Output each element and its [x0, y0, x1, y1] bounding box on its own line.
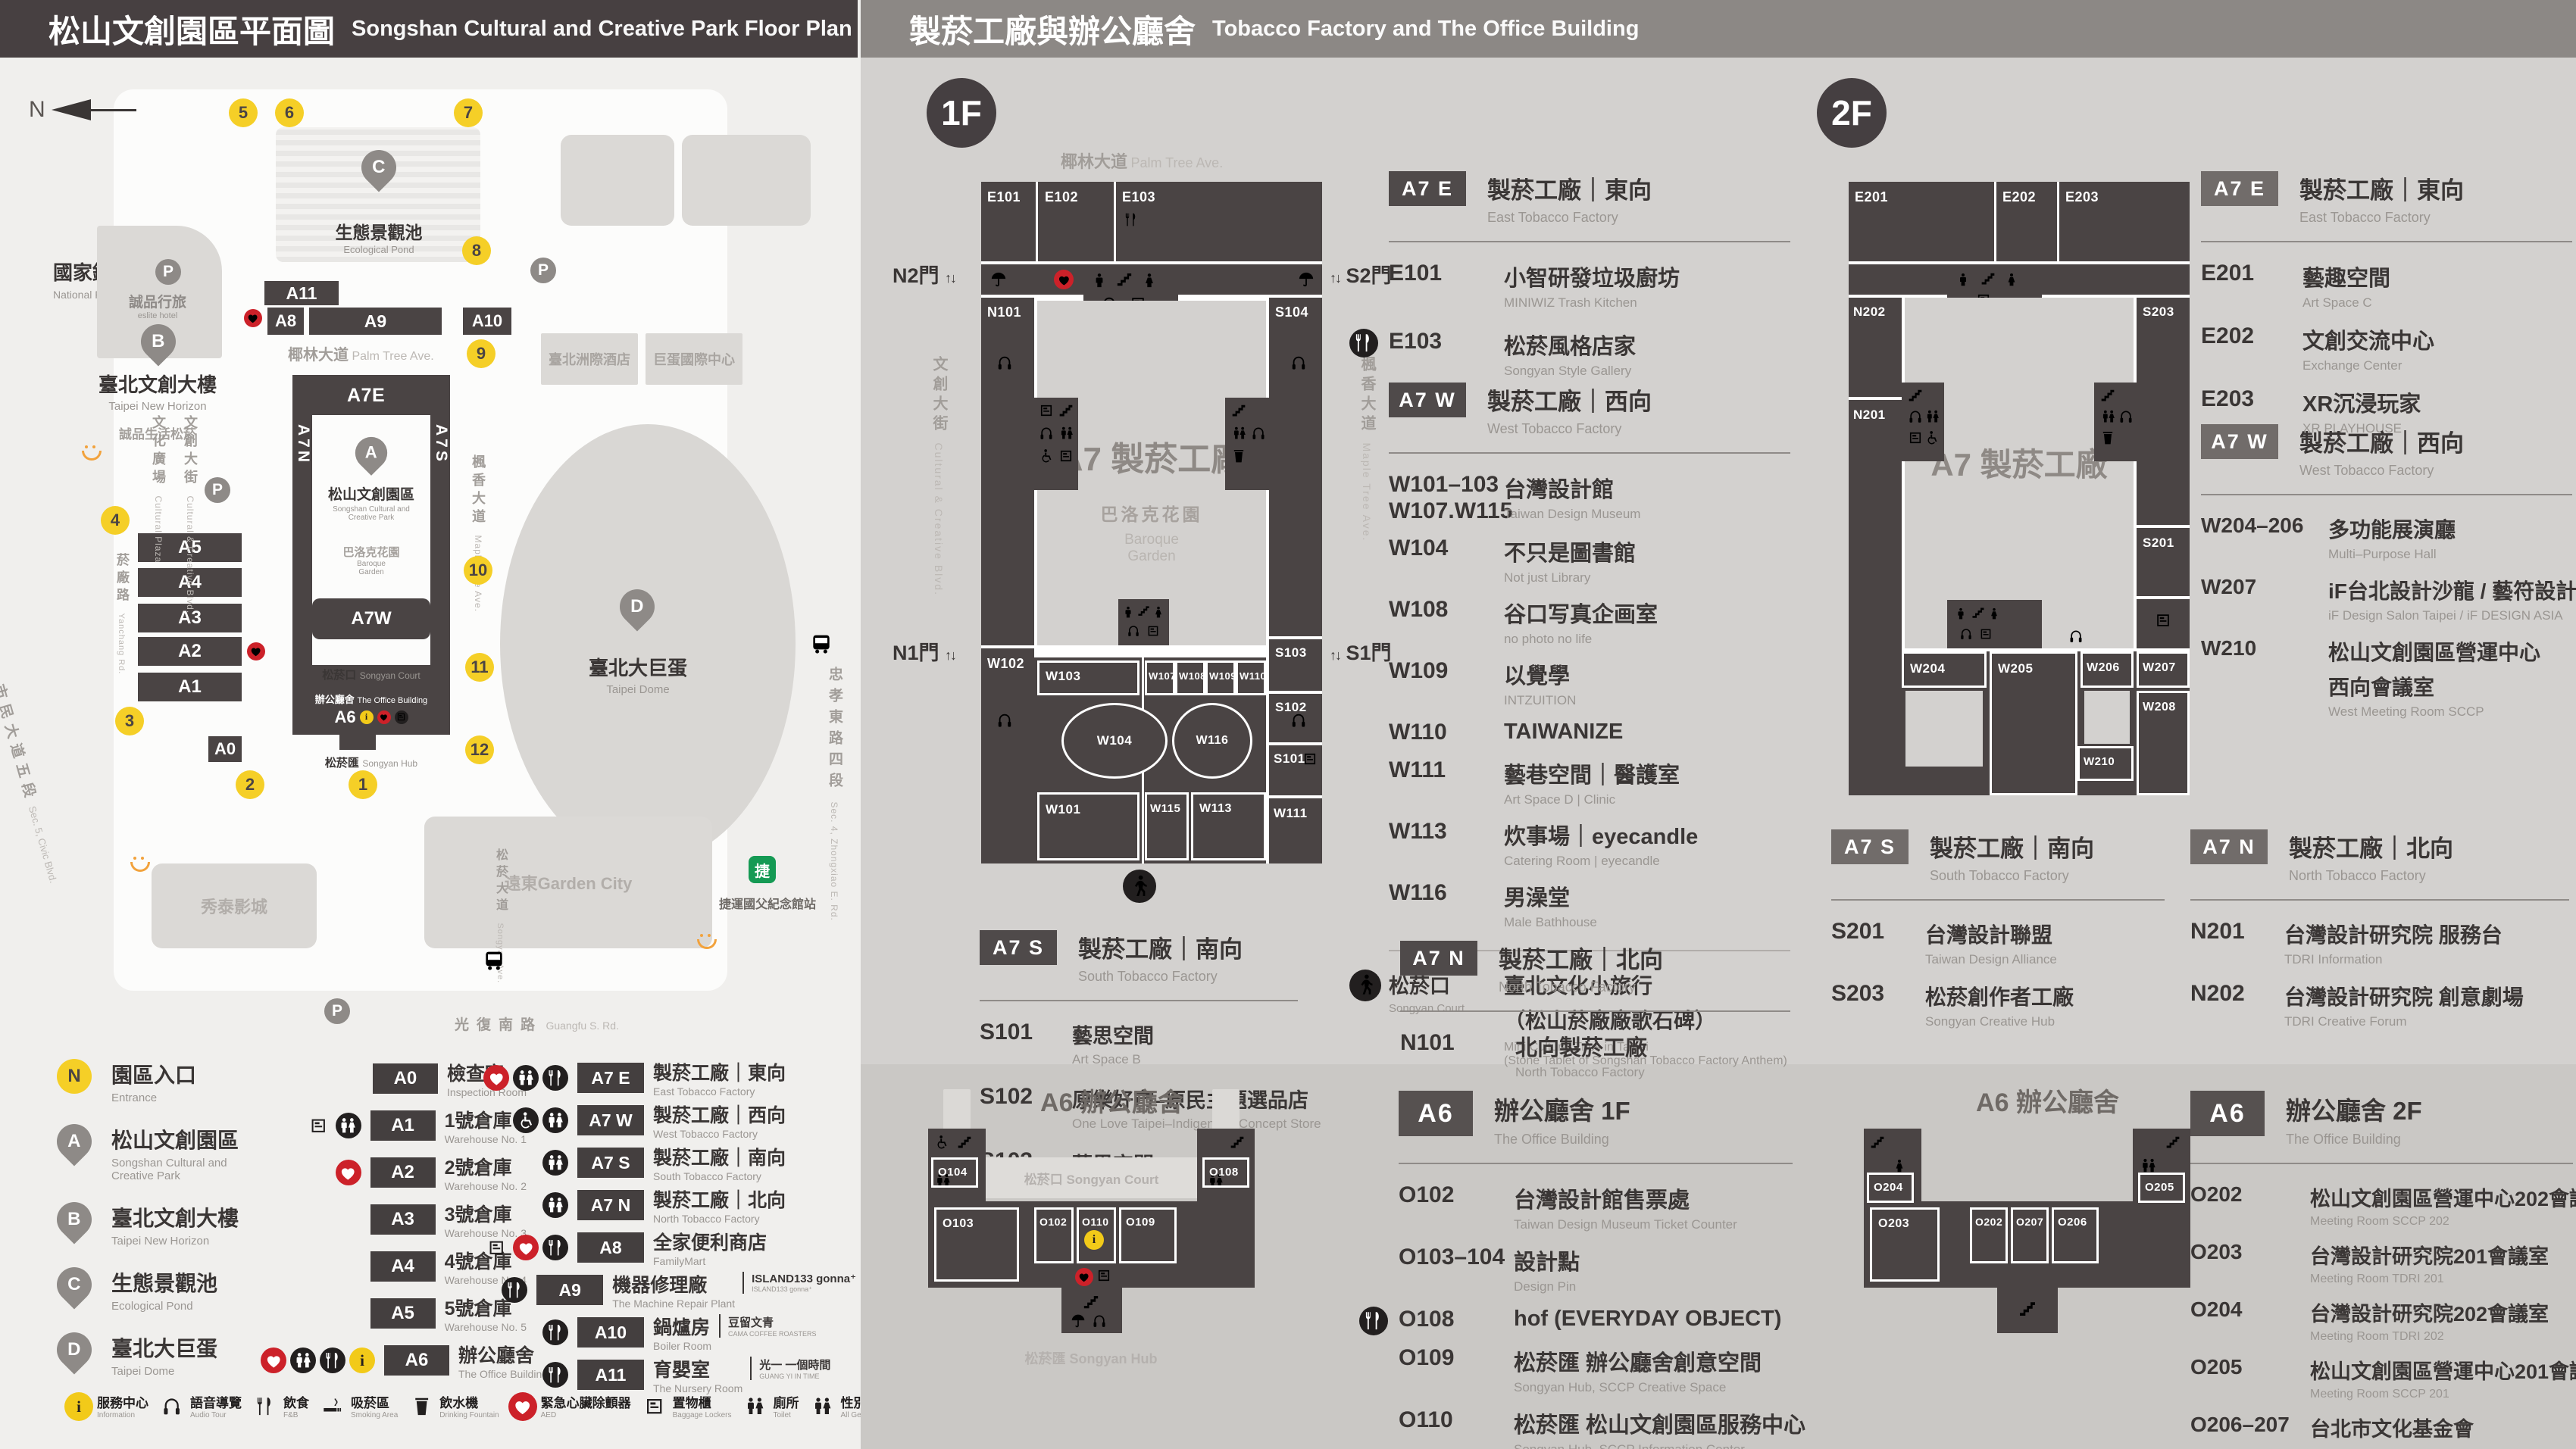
- building-a7e-label: A7E: [347, 385, 385, 407]
- legend-pins: N 園區入口 Entrance A 松山文創園區 Songshan Cultur…: [57, 1059, 284, 1397]
- room-w113: W113: [1199, 802, 1232, 816]
- room-o109: O109: [1126, 1216, 1155, 1229]
- room-e202: E202: [2002, 189, 2036, 205]
- aed-icon: [244, 309, 262, 327]
- room-list-row: O102 台灣設計館售票處Taiwan Design Museum Ticket…: [1399, 1182, 1793, 1232]
- road-yanchang: 菸廠路 Yanchang Rd.: [112, 553, 131, 674]
- legend-badge: A0: [373, 1063, 438, 1094]
- legend-row: A10 鍋爐房 Boiler Room 豆留文青 CAMA COFFEE ROA…: [470, 1313, 856, 1351]
- legend-badge: A9: [536, 1275, 603, 1305]
- room-list-row: O110 松菸匯 松山文創園區服務中心Songyan Hub, SCCP Inf…: [1399, 1407, 1793, 1449]
- building-a9: A9: [309, 308, 442, 335]
- fnb-c-icon: [320, 1348, 345, 1373]
- legend-badge: A10: [577, 1317, 644, 1348]
- section-a6-1f: A6 辦公廳舍 1FThe Office Building O102 台灣設計館…: [1399, 1091, 1793, 1449]
- room-n201: N201: [1853, 408, 1886, 423]
- room-n101: N101: [987, 304, 1021, 320]
- room-o204: O204: [1874, 1181, 1903, 1194]
- legend-badge: A2: [370, 1157, 436, 1188]
- section-a7s-2f: A7 S 製菸工廠｜南向South Tobacco Factory S201 台…: [1831, 829, 2165, 1029]
- section-a7e-1f: A7 E 製菸工廠｜東向East Tobacco Factory E101 小智…: [1389, 171, 1790, 379]
- gate-n2: N2門 ↑↓: [893, 259, 955, 289]
- locker-icon: [1908, 430, 1923, 445]
- audio-guide-icon: [1092, 1313, 1107, 1329]
- legend-pin-row: A 松山文創園區 Songshan Cultural and Creative …: [57, 1124, 284, 1182]
- entrance-11: 11: [465, 653, 494, 682]
- room-list-row: O202 松山文創園區營運中心202會議室Meeting Room SCCP 2…: [2190, 1182, 2573, 1229]
- toilet-c-icon: [542, 1150, 568, 1176]
- facility-item: i 服務中心 Information: [64, 1392, 148, 1421]
- facility-item: 廁所 Toilet: [740, 1392, 799, 1421]
- legend-badge: A3: [370, 1204, 436, 1235]
- room-list-row: E202 文創交流中心Exchange Center: [2201, 323, 2572, 373]
- fountain-icon: [1231, 448, 1246, 464]
- womens-toilet-icon: [2005, 271, 2018, 288]
- building-a7n-label: A7N: [294, 424, 312, 465]
- legend-pin-row: C 生態景觀池 Ecological Pond: [57, 1267, 284, 1313]
- facility-item: 飲水機 Drinking Fountain: [407, 1392, 499, 1421]
- hotel-block: 臺北洲際酒店: [541, 333, 638, 385]
- north-arrow-icon: [52, 99, 91, 120]
- room-o110: O110: [1082, 1216, 1108, 1228]
- room-w104: W104: [1097, 733, 1132, 748]
- stairs-icon: [1908, 388, 1923, 403]
- room-list-row: E201 藝趣空間Art Space C: [2201, 261, 2572, 311]
- legend-row: A8 全家便利商店 FamilyMart: [470, 1229, 856, 1266]
- room-list-row: W207 iF台北設計沙龍 / 藝符設計iF Design Salon Taip…: [2201, 575, 2572, 623]
- toilet-icon: [740, 1392, 769, 1421]
- legend-pin-icon: A: [49, 1116, 98, 1166]
- locker-icon: [1302, 751, 1318, 767]
- room-w101: W101: [1046, 802, 1080, 817]
- room-list-row: O206–207 台北市文化基金會松山文創園區營運中心Taipei Cultur…: [2190, 1413, 2573, 1449]
- left-title-en: Songshan Cultural and Creative Park Floo…: [352, 17, 852, 42]
- building-a10: A10: [463, 308, 511, 335]
- fountain-icon: [2100, 430, 2115, 445]
- facility-item: 語音導覽 Audio Tour: [158, 1392, 242, 1421]
- room-o207: O207: [2016, 1216, 2043, 1228]
- parking-icon: P: [324, 998, 350, 1024]
- entrance-4: 4: [101, 506, 130, 535]
- toilet-c-icon: [336, 1113, 361, 1138]
- facility-item: 吸菸區 Smoking Area: [318, 1392, 398, 1421]
- room-list-row: O204 台灣設計研究院202會議室Meeting Room TDRI 202: [2190, 1298, 2573, 1344]
- right-header: 製菸工廠與辦公廳舍 Tobacco Factory and The Office…: [861, 0, 2576, 58]
- hotel-block: 巨蛋國際中心: [646, 333, 742, 385]
- legend-pin-row: D 臺北大巨蛋 Taipei Dome: [57, 1332, 284, 1378]
- dome-label: 臺北大巨蛋 Taipei Dome: [562, 653, 714, 696]
- room-list-row: E101 小智研發垃圾廚坊MINIWIZ Trash Kitchen: [1389, 261, 1790, 311]
- accessible-icon: [1924, 430, 1940, 445]
- legend-pin-icon: D: [49, 1325, 98, 1374]
- audio-guide-icon: [1290, 354, 1307, 371]
- room-list-row: W113 炊事場｜eyecandleCatering Room | eyecan…: [1389, 819, 1790, 869]
- room-e201: E201: [1855, 189, 1888, 205]
- aed-icon: [513, 1235, 539, 1260]
- tobacco-factory-plan-2f: E201 E202 E203 N202 N201 S203 S201 W204 …: [1849, 182, 2190, 795]
- legend-row: A9 機器修理廠 The Machine Repair Plant ISLAND…: [470, 1271, 856, 1309]
- room-s203: S203: [2143, 304, 2174, 320]
- building-a2: A2: [138, 637, 242, 666]
- room-list-row: W110 TAIWANIZE: [1389, 720, 1790, 746]
- legend-pin-icon: N: [57, 1059, 92, 1094]
- audio-guide-icon: [1127, 624, 1140, 638]
- room-list-row: W116 男澡堂Male Bathhouse: [1389, 880, 1790, 930]
- locker-icon: [306, 1113, 332, 1138]
- room-o202: O202: [1975, 1216, 2002, 1228]
- legend-row: A7 E 製菸工廠｜東向 East Tobacco Factory: [470, 1059, 856, 1097]
- a6-plan-2f: A6 辦公廳舍 O204 O205 O203 O202 O207 O206: [1856, 1082, 2193, 1385]
- room-o104: O104: [938, 1166, 968, 1179]
- info-icon: i: [1084, 1230, 1104, 1250]
- womens-toilet-icon: [1988, 606, 2000, 621]
- legend-badge: A5: [370, 1298, 436, 1329]
- road-zhongxiao: 忠孝東路四段 Sec. 4, Zhongxiao E. Rd.: [824, 667, 845, 921]
- toilet-icon: [1231, 426, 1248, 441]
- audio-icon: [158, 1392, 186, 1421]
- locker-icon: [2155, 612, 2171, 629]
- room-list-row: S203 松菸創作者工廠Songyan Creative Hub: [1831, 981, 2165, 1029]
- room-list-row: W108 谷口写真企画室no photo no life: [1389, 597, 1790, 647]
- north-arrow: N: [29, 97, 136, 123]
- room-w116: W116: [1196, 734, 1229, 748]
- entrance-7: 7: [454, 98, 483, 127]
- parking-icon: P: [530, 258, 556, 283]
- room-list-row: O109 松菸匯 辦公廳舍創意空間Songyan Hub, SCCP Creat…: [1399, 1345, 1793, 1395]
- road-guangfu: 光復南路 Guangfu S. Rd.: [455, 1013, 619, 1034]
- smoke-icon: [318, 1392, 347, 1421]
- womens-toilet-icon: [1893, 1157, 1906, 1174]
- parking-icon: P: [205, 477, 230, 503]
- room-n202: N202: [1853, 304, 1886, 320]
- room-e102: E102: [1045, 189, 1078, 205]
- room-w102: W102: [987, 656, 1024, 672]
- stairs-icon: [1980, 271, 1996, 286]
- allgender-icon: [808, 1392, 836, 1421]
- section-a7n-2f: A7 N 製菸工廠｜北向North Tobacco Factory N201 台…: [2190, 829, 2569, 1029]
- mens-toilet-icon: [1955, 606, 1967, 621]
- legend-badge: A1: [370, 1110, 436, 1141]
- audio-guide-icon: [1908, 409, 1923, 424]
- stairs-icon: [1230, 1135, 1245, 1150]
- facility-item: 置物櫃 Baggage Lockers: [640, 1392, 732, 1421]
- toilet-c-icon: [290, 1348, 316, 1373]
- building-a8: A8: [267, 308, 304, 335]
- right-title-zh: 製菸工廠與辦公廳舍: [909, 6, 1196, 52]
- gate-s1: ↑↓ S1門: [1330, 636, 1392, 666]
- gate-s2: ↑↓ S2門: [1330, 259, 1392, 289]
- room-s101: S101: [1274, 751, 1305, 767]
- stairs-icon: [2100, 388, 2115, 403]
- legend-badge: A7 S: [577, 1148, 644, 1178]
- legend-pin-row: B 臺北文創大樓 Taipei New Horizon: [57, 1202, 284, 1248]
- room-list-row: W104 不只是圖書館Not just Library: [1389, 536, 1790, 586]
- legend-badge: A8: [577, 1232, 644, 1263]
- stairs-icon: [1058, 403, 1074, 418]
- toilet-c-icon: [513, 1065, 539, 1091]
- info-icon: i: [349, 1348, 375, 1373]
- stairs-icon: [1971, 606, 1985, 620]
- facility-item: 緊急心臟除顫器 AED: [508, 1392, 631, 1421]
- road-maple-ave: 楓香大道 Maple Tree Ave.: [468, 454, 488, 612]
- entrance-6: 6: [275, 98, 304, 127]
- legend-badge: A11: [577, 1360, 644, 1390]
- culture-walk-icon: [1349, 970, 1381, 1001]
- mrt-station-label: 捷運國父紀念館站: [703, 894, 832, 912]
- bus-stop-icon: [477, 948, 511, 973]
- building-a11: A11: [264, 281, 339, 305]
- stairs-icon: [1231, 403, 1246, 418]
- audio-guide-icon: [996, 354, 1013, 371]
- legend-row: A7 W 製菸工廠｜西向 West Tobacco Factory: [470, 1101, 856, 1139]
- access-c-icon: [513, 1107, 539, 1133]
- audio-guide-icon: [1039, 426, 1054, 441]
- a6-plan-1f: A6 辦公廳舍 松菸口 Songyan Court O104 O108 O103…: [921, 1082, 1258, 1385]
- room-o206: O206: [2058, 1216, 2087, 1229]
- room-s103: S103: [1275, 645, 1307, 660]
- stairs-icon: [957, 1135, 972, 1150]
- room-o102: O102: [1039, 1216, 1067, 1228]
- mens-toilet-icon: [1122, 604, 1134, 620]
- cinema-block: 秀泰影城: [152, 863, 317, 948]
- floor-badge-1f: 1F: [927, 78, 996, 148]
- legend-badge: A4: [370, 1251, 436, 1282]
- entrance-1: 1: [349, 770, 377, 799]
- room-o205: O205: [2145, 1181, 2174, 1194]
- city-block: [561, 135, 674, 226]
- fountain-icon: [407, 1392, 436, 1421]
- room-list-row: W109 以覺學INTZUITION: [1389, 658, 1790, 708]
- legend-row: A7 N 製菸工廠｜北向 North Tobacco Factory: [470, 1186, 856, 1224]
- section-a7n-1f: A7 N 製菸工廠｜北向North Tobacco Factory N101 北…: [1400, 941, 1790, 1080]
- legend-row: A11 育嬰室 The Nursery Room 光一 一個時間 GUANG Y…: [470, 1356, 856, 1394]
- locker-icon: [1146, 624, 1160, 638]
- entrance-9: 9: [467, 339, 496, 368]
- park-label: 松山文創園區 Songshan Cultural and Creative Pa…: [312, 483, 430, 522]
- locker-icon: [1039, 403, 1054, 418]
- stairs-icon: [2165, 1135, 2181, 1150]
- road-palm-1f: 椰林大道 Palm Tree Ave.: [1061, 148, 1223, 173]
- legend-row: A7 S 製菸工廠｜南向 South Tobacco Factory: [470, 1144, 856, 1182]
- room-list-row: W101–103W107.W115 台灣設計館Taiwan Design Mus…: [1389, 472, 1790, 524]
- left-title-zh: 松山文創園區平面圖: [48, 6, 335, 52]
- umbrella-icon: [1298, 271, 1315, 288]
- locker-icon: [640, 1392, 669, 1421]
- aed-icon: [377, 710, 391, 724]
- stairs-icon: [1137, 604, 1150, 617]
- garden-city-block: 遠東Garden City: [424, 817, 712, 948]
- gate-n1: N1門 ↑↓: [893, 636, 955, 666]
- room-o203: O203: [1878, 1217, 1909, 1231]
- entrance-3: 3: [115, 707, 144, 735]
- building-a1: A1: [138, 673, 242, 701]
- road-cultural-plaza: 文化廣場 Cultural Plaza: [148, 415, 168, 563]
- city-block: [682, 135, 811, 226]
- entrance-2: 2: [236, 770, 264, 799]
- songyan-court-label: 松菸口 Songyan Court: [305, 667, 438, 682]
- left-header: 松山文創園區平面圖 Songshan Cultural and Creative…: [0, 0, 858, 58]
- section-a6-2f: A6 辦公廳舍 2FThe Office Building O202 松山文創園…: [2190, 1091, 2573, 1449]
- toilet-icon: [2100, 409, 2117, 424]
- room-w210: W210: [2084, 755, 2115, 768]
- room-w107: W107: [1149, 670, 1176, 682]
- legend-badge: A7 E: [577, 1063, 644, 1093]
- room-list-row: W210 松山文創園區營運中心西向會議室West Meeting Room SC…: [2201, 636, 2572, 720]
- toilet-c-icon: [542, 1107, 568, 1133]
- locker-icon: [395, 710, 408, 724]
- womens-toilet-icon: [1142, 271, 1157, 289]
- entrance-8: 8: [462, 236, 491, 265]
- room-list-row: O203 台灣設計研究院201會議室Meeting Room TDRI 201: [2190, 1240, 2573, 1286]
- womens-toilet-icon: [1152, 604, 1165, 620]
- room-w205: W205: [1998, 661, 2033, 676]
- fnb-icon: [1124, 212, 1139, 227]
- tobacco-factory-plan-1f: E101 E102 E103 N101 W102 S104 S103 S102 …: [981, 182, 1322, 863]
- legend-note: 豆留文青 CAMA COFFEE ROASTERS: [719, 1314, 817, 1338]
- locker-icon: [483, 1235, 509, 1260]
- umbrella-icon: [990, 271, 1007, 288]
- room-list-row: N101 北向製菸工廠North Tobacco Factory: [1400, 1030, 1790, 1080]
- legend-badge: A7 W: [577, 1105, 644, 1135]
- bus-stop-icon: [805, 632, 838, 656]
- stairs-icon: [1116, 271, 1133, 288]
- metro-icon: 捷: [749, 856, 776, 883]
- toilet-icon: [1924, 409, 1941, 424]
- mens-toilet-icon: [1956, 271, 1970, 288]
- road-palm-tree-ave: 椰林大道 Palm Tree Ave.: [288, 342, 434, 364]
- stairs-icon: [2018, 1300, 2037, 1318]
- fnb-c-icon: [1359, 1307, 1388, 1335]
- entrance-5: 5: [229, 98, 258, 127]
- room-w108: W108: [1179, 670, 1206, 682]
- fnb-c-icon: [542, 1319, 568, 1345]
- accessible-icon: [1039, 448, 1054, 464]
- road-cc-blvd: 文創大街 Cultural & Creative Blvd.: [180, 415, 200, 614]
- room-list-row: O108 hof (EVERYDAY OBJECT): [1399, 1307, 1793, 1333]
- fnb-c-icon: [542, 1065, 568, 1091]
- legend-badge: A7 N: [577, 1190, 644, 1220]
- building-a0: A0: [208, 736, 242, 762]
- aed-icon: [508, 1392, 537, 1421]
- audio-guide-icon: [1251, 426, 1266, 441]
- toilet-icon: [2140, 1157, 2158, 1174]
- room-o108: O108: [1209, 1166, 1239, 1179]
- fnb-c-icon: [502, 1277, 527, 1303]
- room-list-row: W111 藝巷空間｜醫護室Art Space D | Clinic: [1389, 757, 1790, 807]
- room-s104: S104: [1275, 304, 1308, 320]
- room-list-row: E103 松菸風格店家Songyan Style Gallery: [1389, 329, 1790, 379]
- room-w115: W115: [1150, 802, 1180, 815]
- building-a6: 辦公廳舍 The Office Building A6 i: [312, 685, 430, 733]
- aed-icon: [483, 1065, 509, 1091]
- culture-walk-icon: [1123, 870, 1156, 903]
- room-w110: W110: [1240, 670, 1266, 682]
- room-list-row: O205 松山文創園區營運中心201會議室Meeting Room SCCP 2…: [2190, 1355, 2573, 1401]
- room-w204: W204: [1910, 661, 1945, 676]
- pond-label: 生態景觀池 Ecological Pond: [303, 218, 455, 255]
- eslite-hotel-label: 誠品行旅 eslite hotel: [112, 291, 203, 320]
- room-list-row: O103–104 設計點Design Pin: [1399, 1244, 1793, 1294]
- fnb-icon: [251, 1392, 280, 1421]
- facility-item: 飲食 F&B: [251, 1392, 309, 1421]
- building-a7s-label: A7S: [432, 424, 450, 464]
- entrance-12: 12: [465, 735, 494, 764]
- taipei-dome: [500, 424, 796, 863]
- audio-guide-icon: [1959, 627, 1973, 641]
- room-w109: W109: [1209, 670, 1236, 682]
- room-o103: O103: [943, 1217, 974, 1231]
- road-maple-1f: 楓香大道 Maple Tree Ave.: [1356, 356, 1378, 542]
- room-w103: W103: [1046, 669, 1080, 684]
- fnb-c-icon: [542, 1235, 568, 1260]
- stairs-icon: [1083, 1294, 1099, 1310]
- floor-badge-2f: 2F: [1817, 78, 1887, 148]
- legend-pin-icon: B: [49, 1194, 98, 1244]
- room-list-row: N202 台灣設計研究院 創意劇場TDRI Creative Forum: [2190, 981, 2569, 1029]
- audio-guide-icon: [996, 712, 1013, 729]
- section-a7w-2f: A7 W 製菸工廠｜西向West Tobacco Factory W204–20…: [2201, 424, 2572, 720]
- room-list-row: N201 台灣設計研究院 服務台TDRI Information: [2190, 919, 2569, 967]
- room-s201: S201: [2143, 536, 2174, 551]
- legend-pin-row: N 園區入口 Entrance: [57, 1059, 284, 1104]
- legend-pin-icon: C: [49, 1260, 98, 1309]
- floor-plan-poster: 松山文創園區平面圖 Songshan Cultural and Creative…: [0, 0, 2576, 1449]
- room-w206: W206: [2087, 661, 2120, 675]
- audio-guide-icon: [2118, 409, 2134, 424]
- section-a7e-2f: A7 E 製菸工廠｜東向East Tobacco Factory E201 藝趣…: [2201, 171, 2572, 436]
- audio-guide-icon: [1290, 712, 1307, 729]
- room-w111: W111: [1274, 806, 1308, 821]
- building-a7w: A7W: [312, 598, 430, 639]
- aed-icon: [247, 642, 265, 660]
- room-e103: E103: [1122, 189, 1155, 205]
- legend-note: ISLAND133 gonna⁺ ISLAND133 gonna⁺: [742, 1272, 856, 1294]
- fnb-c-icon: [542, 1362, 568, 1388]
- right-title-en: Tobacco Factory and The Office Building: [1212, 17, 1639, 42]
- baroque-garden-label: 巴洛克花園 Baroque Garden: [312, 544, 430, 576]
- aed-icon: [1075, 1268, 1093, 1286]
- room-w207: W207: [2143, 661, 2176, 675]
- aed-icon: [261, 1348, 286, 1373]
- aed-icon: [336, 1160, 361, 1185]
- road-ccblvd-1f: 文創大街 Cultural & Creative Blvd.: [928, 356, 950, 596]
- room-e203: E203: [2065, 189, 2099, 205]
- room-w208: W208: [2143, 701, 2176, 714]
- fnb-c-icon: [1349, 329, 1378, 358]
- legend-col-b: A7 E 製菸工廠｜東向 East Tobacco Factory A7 W: [470, 1059, 856, 1398]
- room-list-row: W204–206 多功能展演廳Multi–Purpose Hall: [2201, 514, 2572, 562]
- parking-icon: P: [155, 259, 181, 285]
- locker-icon: [1058, 448, 1074, 464]
- locker-icon: [1979, 627, 1993, 641]
- stairs-icon: [1870, 1135, 1885, 1150]
- room-e101: E101: [987, 189, 1021, 205]
- toilet-icon: [1058, 426, 1075, 441]
- audio-guide-icon: [2068, 629, 2084, 644]
- room-list-row: S201 台灣設計聯盟Taiwan Design Alliance: [1831, 919, 2165, 967]
- info-icon: i: [360, 710, 374, 724]
- accessible-icon: [934, 1135, 949, 1150]
- toilet-c-icon: [542, 1192, 568, 1218]
- aed-icon: [1054, 270, 1074, 289]
- mens-toilet-icon: [1092, 271, 1107, 289]
- umbrella-icon: [1071, 1313, 1086, 1329]
- legend-badge: A6: [384, 1345, 449, 1376]
- info-icon: i: [64, 1392, 93, 1421]
- entrance-10: 10: [464, 556, 492, 585]
- room-list-row: S101 藝思空間Art Space B: [980, 1020, 1298, 1067]
- building-a6-stub: [339, 733, 376, 750]
